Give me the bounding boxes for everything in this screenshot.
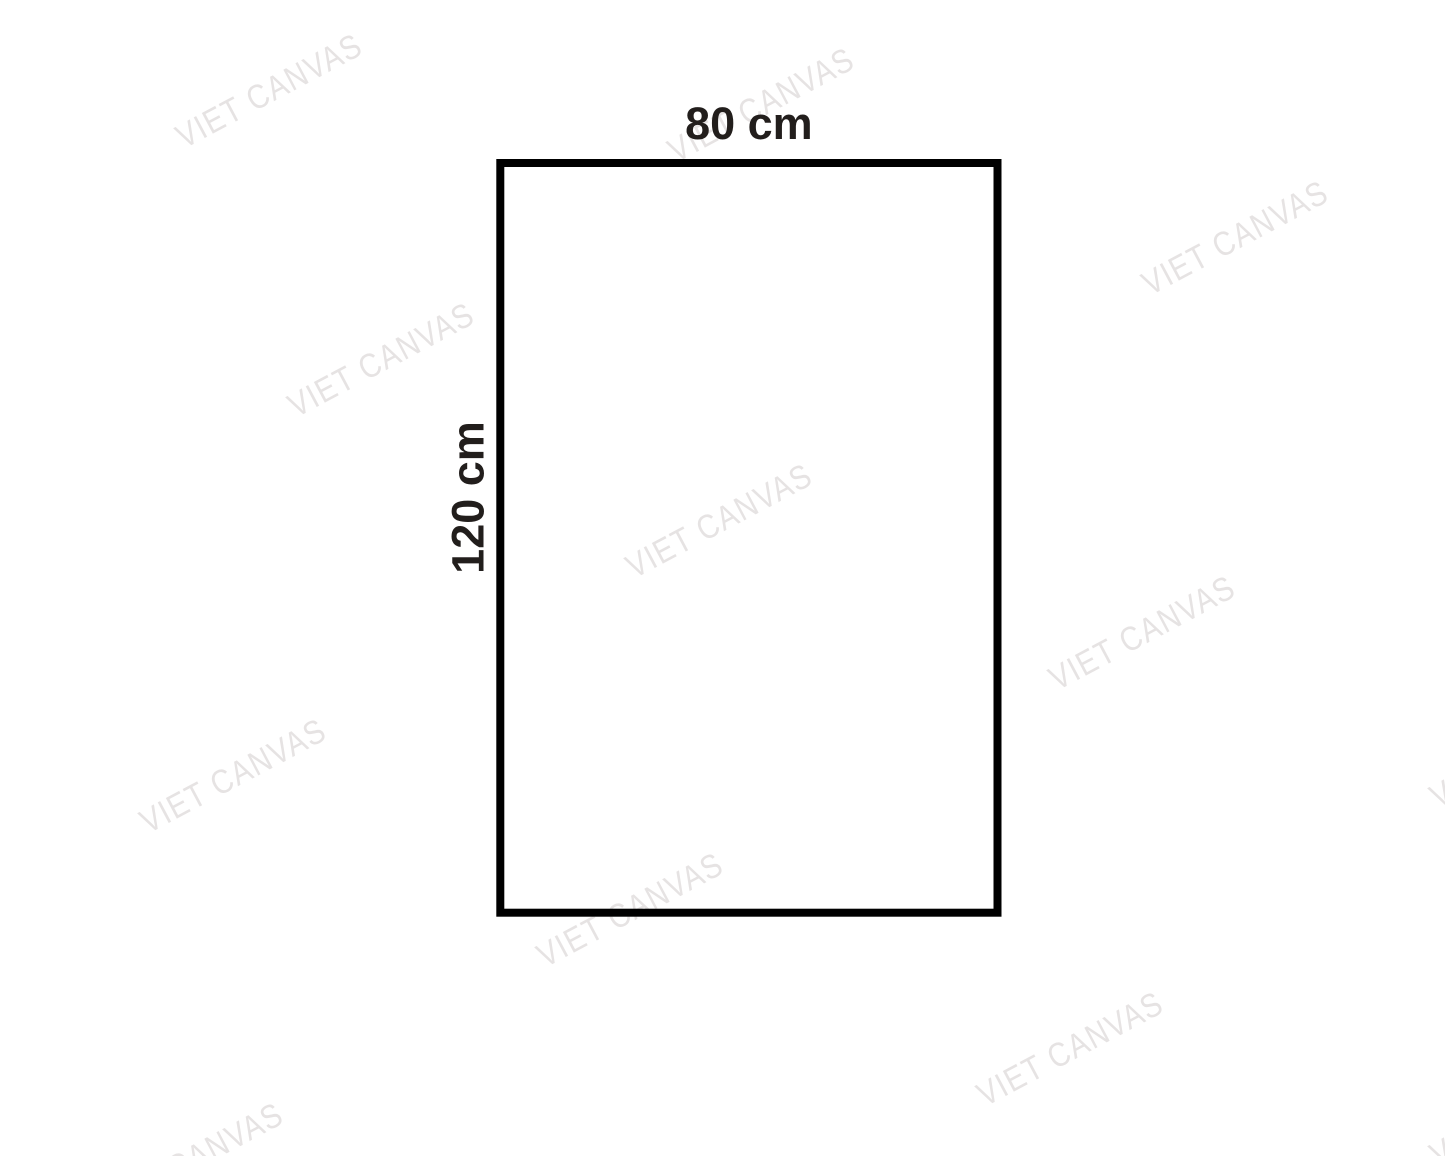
svg-text:80 cm: 80 cm bbox=[685, 98, 813, 149]
svg-text:120 cm: 120 cm bbox=[443, 421, 494, 574]
